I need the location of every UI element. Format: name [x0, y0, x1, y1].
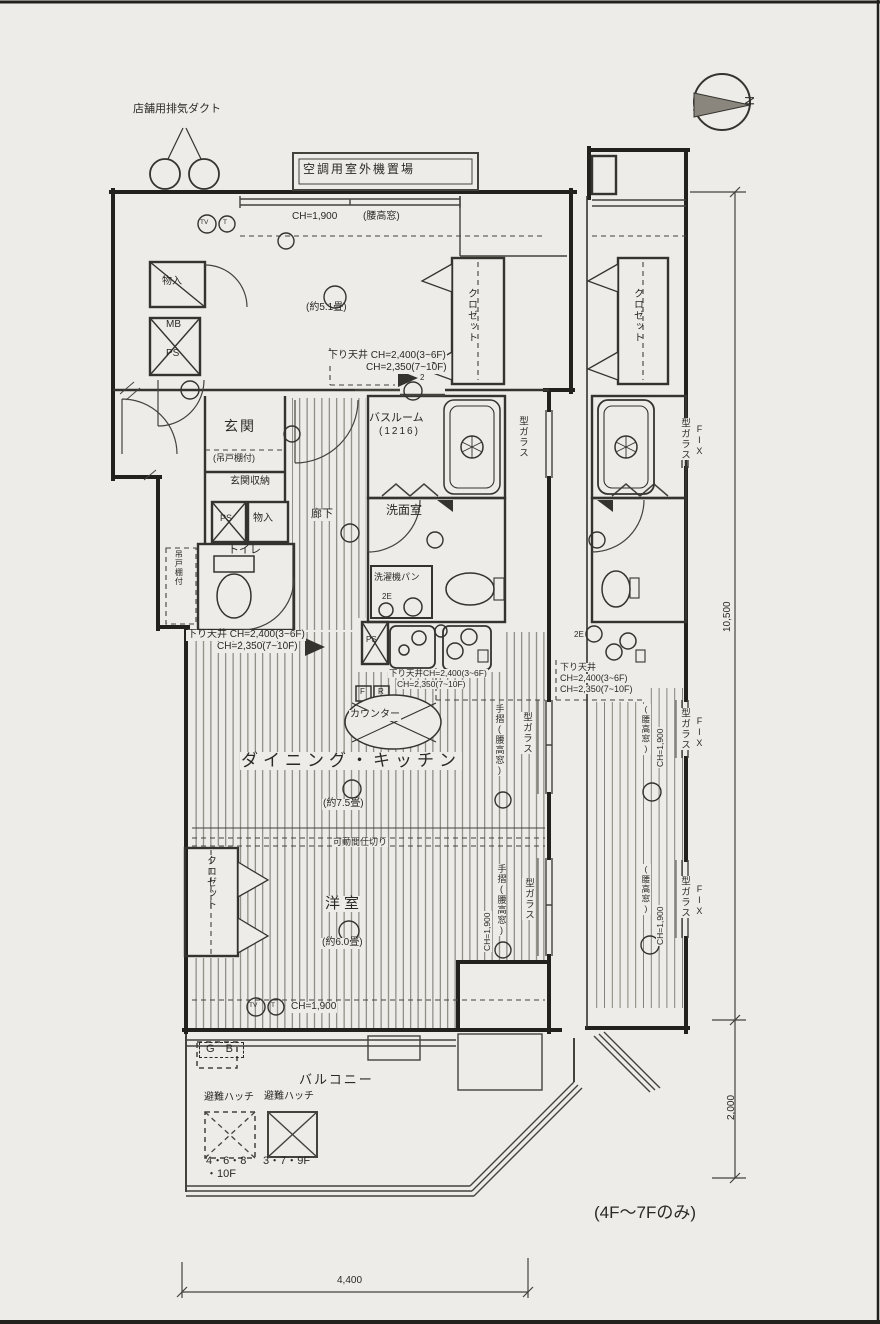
label-ps-mb: PS	[166, 349, 179, 360]
label-glass-r-mid: 型ガラス	[678, 708, 690, 750]
tv-outlet-icon: TV	[200, 220, 208, 227]
label-ch-r-mid: CH=1,900	[656, 727, 665, 768]
dim-vertical-main: 10,500	[723, 601, 734, 632]
label-dropceiling-r1: 下り天井	[559, 663, 597, 672]
label-floors-a2: ・10F	[206, 1169, 236, 1181]
label-counter: カウンター	[349, 710, 401, 721]
dim-bottom: 4,400	[337, 1276, 362, 1287]
label-dropceiling-1a: 下り天井 CH=2,400(3~6F)	[327, 351, 447, 362]
label-floors-note: (4F～7Fのみ)	[594, 1204, 696, 1222]
label-outlet-rightplan: 2E	[573, 631, 585, 639]
label-ac-unit-area: 空調用室外機置場	[303, 163, 415, 176]
label-exhaust-duct: 店舗用排気ダクト	[133, 104, 221, 116]
label-mb: MB	[166, 320, 181, 331]
label-western-room-size: (約6.0畳)	[321, 938, 364, 949]
label-koshimado-r-low: (腰高窓)	[640, 864, 651, 915]
label-movable-partition: 可動間仕切り	[332, 838, 388, 847]
label-floors-a1: 4・6・8	[206, 1156, 246, 1168]
floorplan-drawing	[0, 0, 880, 1324]
label-dropceiling-2b: CH=2,350(7~10F)	[216, 642, 299, 653]
label-floors-b: 3・7・9F	[263, 1156, 310, 1168]
label-fix-r-top: FIX	[694, 424, 703, 457]
label-door-num: 2	[420, 374, 424, 382]
tv-outlet-icon-lower: TV	[249, 1003, 257, 1010]
label-glass-r-low: 型ガラス	[678, 876, 690, 918]
label-gb: G B	[199, 1042, 244, 1058]
label-fix-r-low: FIX	[694, 884, 703, 917]
label-dropceiling-1b: CH=2,350(7~10F)	[365, 363, 448, 374]
label-window-top: (腰高窓)	[362, 212, 401, 223]
label-western-room: 洋室	[324, 896, 364, 912]
label-handrail-mid: 手摺(腰高窓)	[493, 704, 504, 776]
label-glass-bath: 型ガラス	[516, 416, 528, 458]
label-genkan: 玄関	[224, 419, 256, 434]
label-escape-hatch-2: 避難ハッチ	[264, 1092, 314, 1103]
dim-vertical-balcony: 2,000	[727, 1095, 738, 1120]
label-glass-low: 型ガラス	[522, 878, 534, 920]
label-koshimado-r-mid: (腰高窓)	[640, 704, 651, 755]
label-fridge-f: F	[360, 688, 365, 696]
label-ch-r-low: CH=1,900	[656, 905, 665, 946]
label-glass-mid: 型ガラス	[520, 712, 532, 754]
label-fridge-r: R	[378, 688, 384, 696]
label-balcony: バルコニー	[299, 1073, 374, 1087]
label-ch-top: CH=1,900	[291, 212, 338, 223]
label-dropceiling-r3: CH=2,350(7~10F)	[559, 685, 634, 694]
label-toilet-shelf: 吊戸棚付	[174, 550, 182, 586]
label-closet-lower: クロゼット	[204, 855, 215, 910]
label-handrail-low: 手摺(腰高窓)	[495, 864, 506, 936]
exhaust-duct-icon	[150, 128, 219, 189]
label-dropceiling-3b: CH=2,350(7~10F)	[396, 680, 467, 689]
label-washroom: 洗面室	[386, 504, 422, 517]
floorplan-scan: 店舗用排気ダクト 空調用室外機置場 CH=1,900 (腰高窓) TV T (約…	[0, 0, 880, 1324]
label-hanging-cupboard: (吊戸棚付)	[213, 454, 255, 463]
label-entry-storage: 玄関収納	[229, 477, 271, 488]
label-fix-r-mid: FIX	[694, 716, 703, 749]
label-ch-window-low: CH=1,900	[483, 911, 492, 952]
t-outlet-icon-lower: T	[271, 1003, 275, 1010]
label-dk-size: (約7.5畳)	[322, 799, 365, 810]
label-dropceiling-2a: 下り天井 CH=2,400(3~6F)	[186, 630, 306, 641]
label-washer-pan: 洗濯機パン	[374, 573, 419, 582]
label-outlet-main: 2E	[381, 593, 393, 601]
label-toilet: トイレ	[228, 545, 261, 557]
t-outlet-icon: T	[223, 220, 227, 227]
label-dropceiling-r2: CH=2,400(3~6F)	[559, 674, 629, 683]
label-dining-kitchen: ダイニング・キッチン	[240, 752, 462, 770]
label-ps-hall: PS	[220, 514, 232, 523]
label-bathroom-size: (1216)	[379, 427, 420, 438]
label-escape-hatch-1: 避難ハッチ	[204, 1093, 254, 1104]
label-room51-size: (約5.1畳)	[306, 303, 347, 314]
label-ch-bottom: CH=1,900	[290, 1002, 337, 1013]
label-dropceiling-3a: 下り天井CH=2,400(3~6F)	[388, 669, 488, 678]
compass-north-label: N	[742, 96, 756, 105]
label-storage-hall: 物入	[253, 514, 273, 525]
label-storage-upper: 物入	[162, 277, 182, 288]
label-closet-rightplan: クロゼット	[631, 288, 642, 343]
label-bathroom: バスルーム	[369, 413, 424, 425]
label-corridor: 廊下	[310, 509, 334, 521]
label-ps-kitchen: PS	[366, 636, 377, 644]
label-glass-r-top: 型ガラス	[678, 418, 690, 460]
label-closet-upper: クロゼット	[465, 288, 476, 343]
